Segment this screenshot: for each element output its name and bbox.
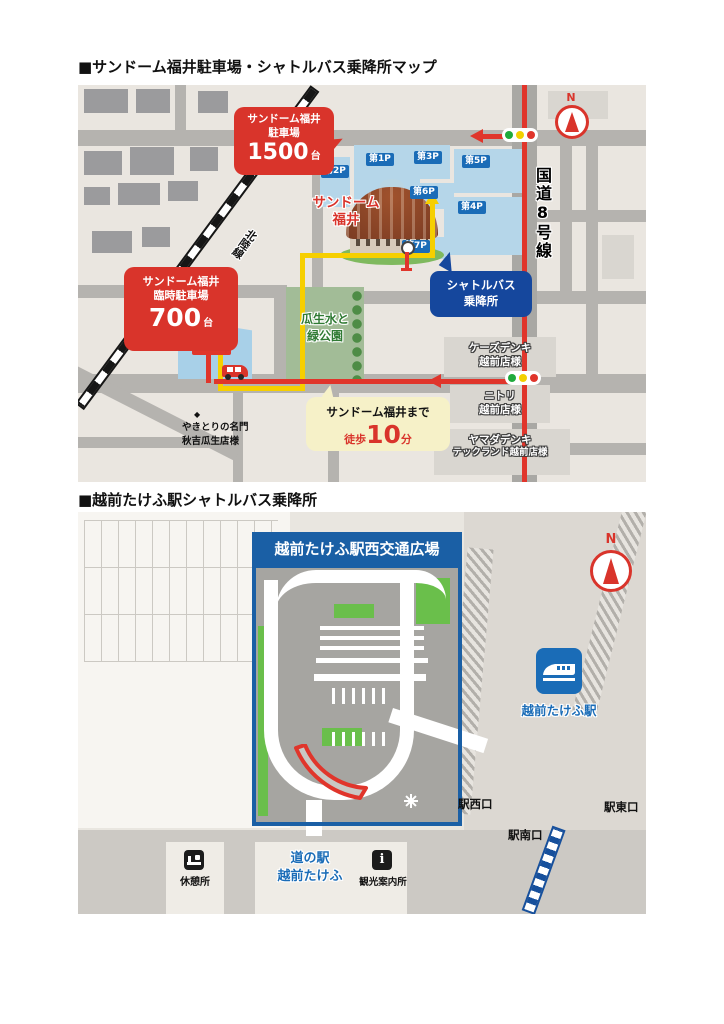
main-parking-callout: サンドーム福井 駐車場 1500台: [234, 107, 334, 175]
shuttle-stop-callout: シャトルバス 乗降所: [430, 271, 532, 317]
lot-badge-4: 第4P: [458, 201, 486, 214]
traffic-light: [502, 128, 538, 142]
building: [602, 235, 634, 279]
info-icon: i: [372, 850, 392, 870]
dome-label: サンドーム 福井: [308, 195, 384, 229]
building: [198, 91, 228, 113]
building: [168, 181, 198, 201]
plaza-boundary: [252, 564, 462, 826]
traffic-light: [505, 371, 541, 385]
compass-needle: [565, 112, 579, 132]
road: [560, 146, 572, 291]
building: [130, 147, 174, 175]
station-icon: [536, 648, 582, 694]
sundome-map: N 第1P 第2P 第3P 第5P 第6P 第4P 第7P 臨時P サンドーム …: [78, 85, 646, 482]
shinkansen-icon: [542, 658, 576, 684]
bus-stop-base: [401, 268, 412, 271]
yakitori-note: やきとりの名門 秋吉瓜生店様: [182, 421, 312, 449]
flyer-page: ■サンドーム福井駐車場・シャトルバス乗降所マップ: [0, 0, 724, 1024]
info-label: 観光案内所: [352, 874, 414, 888]
lot-badge-6: 第6P: [410, 186, 438, 199]
rest-area-label: 休憩所: [166, 873, 224, 888]
road: [586, 146, 598, 392]
station-label: 越前たけふ駅: [506, 700, 612, 719]
rest-area-icon: [184, 850, 204, 870]
north-compass: [590, 550, 632, 592]
temp-parking-callout: サンドーム福井 臨時駐車場 700台: [124, 267, 238, 351]
walk-route: [300, 253, 435, 258]
walk-route: [218, 386, 305, 391]
building: [84, 89, 128, 113]
store-yamada: ヤマダデンキ テックランド越前店様: [430, 433, 570, 460]
map1-title: ■サンドーム福井駐車場・シャトルバス乗降所マップ: [78, 56, 437, 77]
building: [84, 187, 110, 205]
lot-badge-3: 第3P: [414, 151, 442, 164]
building: [92, 231, 132, 253]
car-icon: [222, 365, 248, 380]
compass-needle: [603, 558, 619, 584]
walk-route: [430, 203, 435, 257]
building: [136, 89, 170, 113]
railway-label: 北陸線: [228, 225, 260, 261]
building: [84, 151, 122, 175]
lot-badge-1: 第1P: [366, 153, 394, 166]
building: [142, 227, 170, 247]
car-route-arrow: [428, 374, 441, 388]
exit-south-label: 駅南口: [508, 827, 543, 843]
exit-west-label: 駅西口: [458, 796, 493, 812]
takefu-station-map: 越前たけふ駅西交通広場 越前たけふ駅 駅西口 駅東口 駅南口 休憩所: [78, 512, 646, 914]
north-label: N: [555, 91, 587, 104]
exit-east-label: 駅東口: [604, 799, 639, 815]
store-ks-denki: ケーズデンキ 越前店様: [444, 341, 556, 369]
road: [175, 85, 186, 146]
car-route: [214, 379, 527, 384]
north-label: N: [590, 532, 632, 547]
building: [190, 147, 218, 171]
north-compass: [555, 105, 589, 139]
bus-stop-pole: [405, 252, 409, 269]
building: [118, 183, 160, 205]
lot-badge-5: 第5P: [462, 155, 490, 168]
store-nitori: ニトリ 越前店様: [444, 389, 556, 417]
route8-label: 国道8号線: [530, 167, 554, 260]
yakitori-marker: ◆: [194, 410, 200, 419]
map2-title: ■越前たけふ駅シャトルバス乗降所: [78, 489, 317, 510]
park-label: 瓜生水と 緑公園: [278, 311, 372, 345]
plaza-header: 越前たけふ駅西交通広場: [252, 532, 462, 566]
car-route-arrow: [470, 129, 483, 143]
michinoeki-label: 道の駅 越前たけふ: [260, 850, 360, 886]
parking-grid-lines: [84, 520, 278, 662]
walk-time-callout: サンドーム福井まで 徒歩10分: [306, 397, 450, 451]
